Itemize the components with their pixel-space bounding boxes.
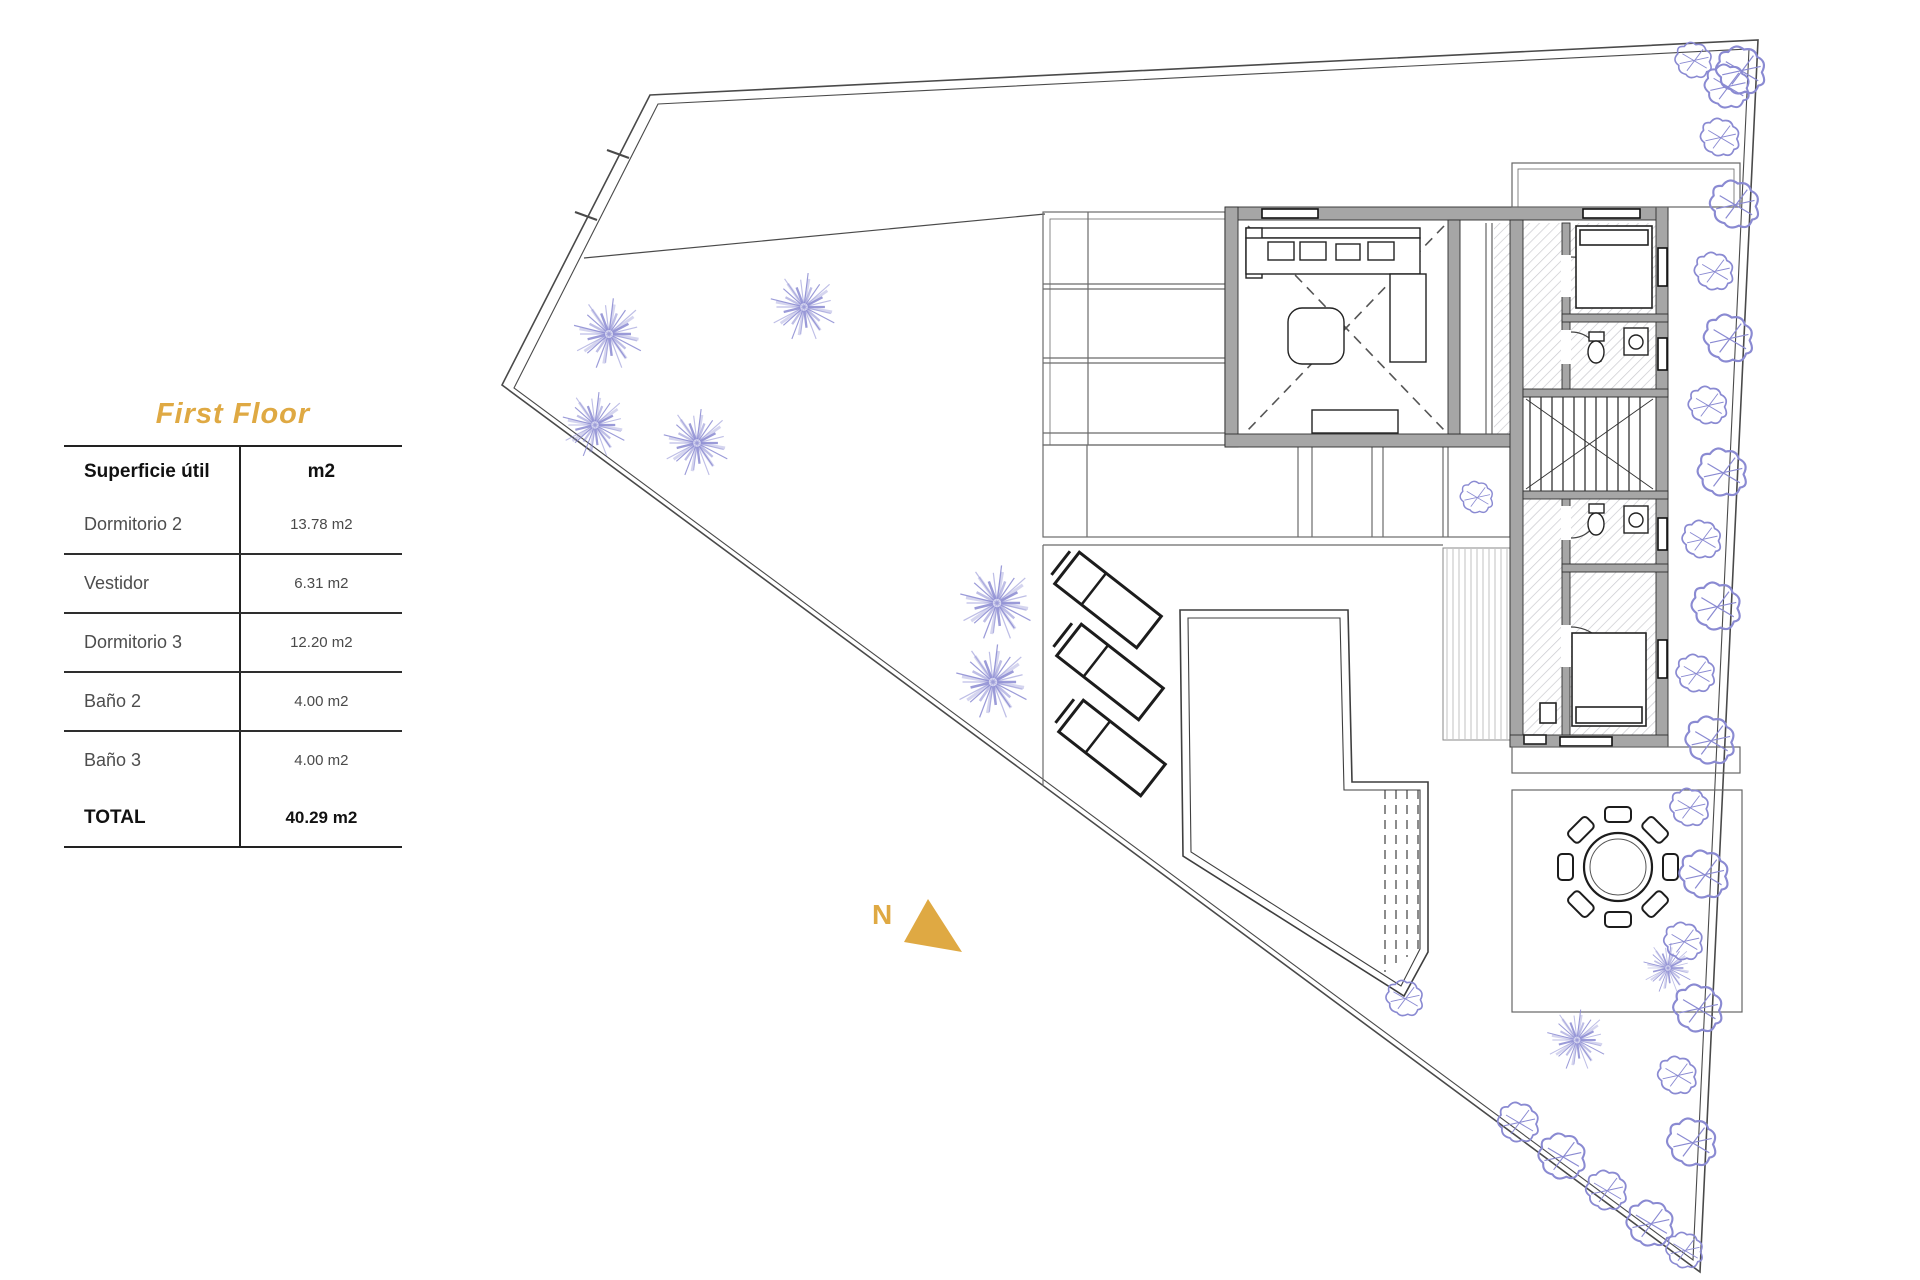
bush: [1682, 520, 1720, 557]
bush: [1667, 1119, 1715, 1166]
bush: [1498, 1102, 1538, 1141]
bush: [1386, 980, 1422, 1015]
bed-pillow: [1580, 230, 1648, 245]
pool-steps: [1385, 790, 1418, 972]
chair: [1663, 854, 1678, 880]
wall-bano2-stairs: [1523, 389, 1668, 397]
bush: [1664, 922, 1702, 959]
chair: [1558, 854, 1573, 880]
bush: [1688, 386, 1726, 423]
sofa-chaise: [1390, 274, 1426, 362]
chair: [1641, 890, 1670, 919]
bush: [1670, 788, 1708, 825]
tree: [664, 409, 727, 475]
nightstand: [1540, 703, 1556, 723]
sofa-back: [1246, 228, 1420, 238]
patio-outline: [1512, 790, 1742, 1012]
bush: [1691, 583, 1739, 630]
cabinet: [1312, 410, 1398, 433]
floor-plan-drawing: N: [0, 0, 1920, 1280]
bush: [1698, 449, 1746, 496]
bush: [1694, 252, 1732, 289]
bush: [1679, 851, 1727, 898]
bush: [1586, 1170, 1626, 1209]
bush: [1538, 1133, 1584, 1178]
staircase: [1523, 397, 1656, 491]
tree: [574, 298, 641, 367]
north-label: N: [872, 899, 892, 930]
bush: [1685, 717, 1733, 764]
exterior-wall-left: [1225, 207, 1238, 447]
pouf: [1288, 308, 1344, 364]
bush: [1658, 1056, 1696, 1093]
hall-floor: [1523, 499, 1562, 735]
wall-stairs-bano3: [1523, 491, 1668, 499]
bush: [1673, 985, 1721, 1032]
bed-pillow: [1576, 707, 1642, 723]
bush: [1700, 118, 1738, 155]
driveway-line: [584, 214, 1045, 258]
sink-basin: [1629, 513, 1643, 527]
round-table: [1584, 833, 1652, 901]
sink-basin: [1629, 335, 1643, 349]
dining-set: [1558, 807, 1678, 927]
deck-strip: [1443, 548, 1510, 740]
tree: [960, 565, 1030, 638]
chair: [1605, 807, 1631, 822]
bush: [1460, 481, 1492, 512]
bench: [1524, 735, 1546, 744]
tree: [1547, 1010, 1604, 1069]
toilet-tank: [1589, 504, 1604, 513]
floor-plan-sheet: First Floor Superficie útil m2 Dormitori…: [0, 0, 1920, 1280]
balcony: [1512, 163, 1740, 207]
tree: [771, 273, 834, 339]
toilet: [1588, 341, 1604, 363]
tree: [1644, 943, 1691, 992]
sofa-cushion: [1300, 242, 1326, 260]
chair: [1605, 912, 1631, 927]
chair: [1566, 890, 1595, 919]
spine-wall: [1510, 220, 1523, 747]
hall-floor: [1523, 223, 1562, 397]
vestidor-right-wall: [1448, 220, 1460, 434]
toilet: [1588, 513, 1604, 535]
wall-bano3-dorm3: [1562, 564, 1668, 572]
bush: [1676, 654, 1714, 691]
toilet-tank: [1589, 332, 1604, 341]
north-arrow: N: [872, 899, 962, 952]
exterior-wall-vestidor-bottom: [1225, 434, 1523, 447]
chair: [1566, 815, 1595, 844]
north-arrow-triangle: [904, 899, 962, 952]
bush: [1675, 42, 1711, 77]
pool: [1180, 610, 1428, 996]
sofa-cushion: [1336, 244, 1360, 260]
wall-dorm2-bano2: [1562, 314, 1668, 322]
sun-loungers: [1048, 547, 1165, 795]
sofa-cushion: [1268, 242, 1294, 260]
chair: [1641, 815, 1670, 844]
bush: [1705, 64, 1749, 107]
void-strip: [1494, 223, 1510, 434]
sofa-cushion: [1368, 242, 1394, 260]
tree: [956, 644, 1026, 717]
